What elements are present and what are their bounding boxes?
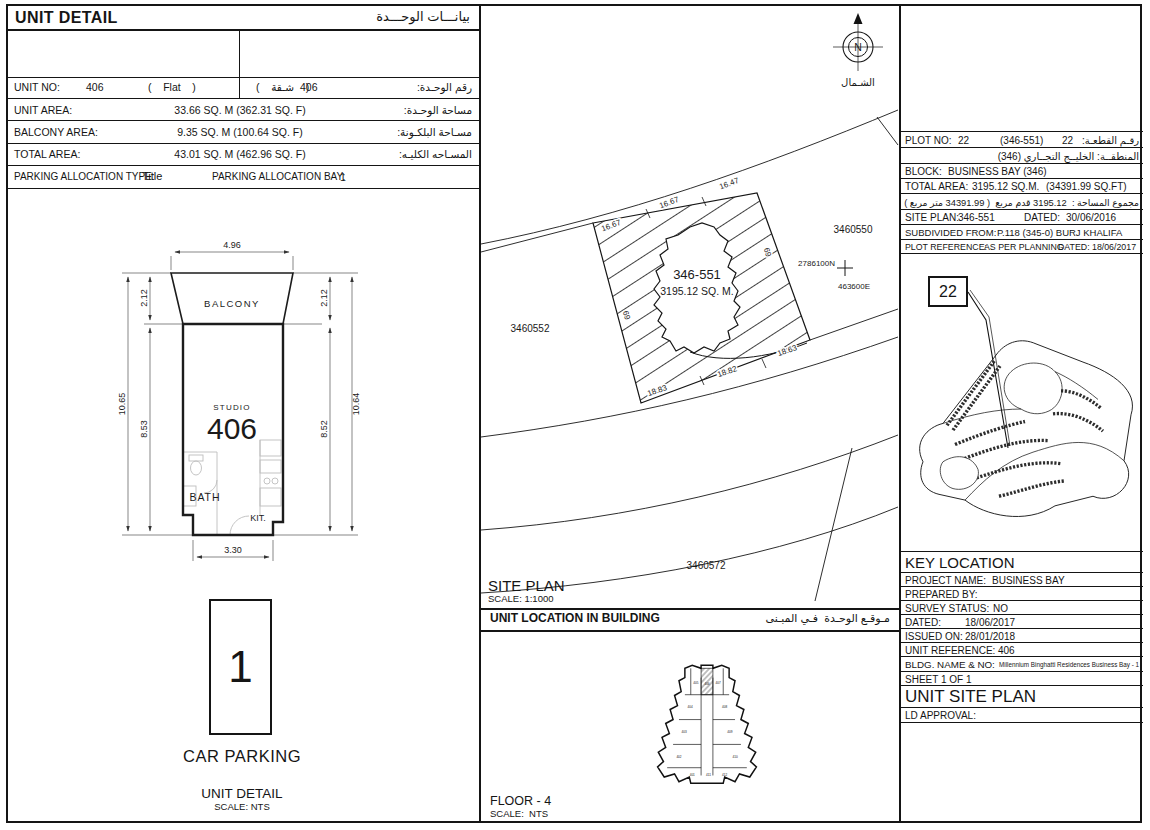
doc-title: UNIT SITE PLAN: [905, 687, 1036, 707]
total-area-arabic-row: مجموع المساحة : 3195.12 قدم مربع ( 34391…: [900, 193, 1143, 209]
left-rule-4: [6, 143, 480, 144]
project-name-row: PROJECT NAME: BUSINESS BAY: [900, 572, 1143, 586]
site-plan-dated-value: 30/06/2016: [1066, 212, 1116, 223]
block-value: BUSINESS BAY (346): [948, 166, 1047, 177]
plate-unit-label: 402: [676, 755, 681, 759]
dim-bottom: 3.30: [224, 545, 242, 555]
prepared-by-row: PREPARED BY:: [900, 586, 1143, 600]
kitchen-label: KIT.: [250, 513, 266, 523]
dated-label: DATED:: [905, 616, 941, 627]
plate-unit-label: 408: [722, 705, 727, 709]
parking-type-value: Title: [142, 170, 162, 183]
neighbor-plot-1: 3460550: [834, 224, 873, 235]
subdivided-label: SUBDIVIDED FROM:: [905, 227, 996, 238]
site-plan-no-label: SITE PLAN:: [905, 212, 959, 223]
left-rule-6: [6, 188, 480, 189]
unit-site-plan-sheet: UNIT DETAIL بيانـــات الوحـــدة UNIT NO:…: [0, 0, 1150, 830]
plot-total-area-label: TOTAL AREA:: [905, 181, 968, 192]
plate-unit-label: 407: [715, 681, 720, 685]
key-location-bottom-rule: [900, 722, 1143, 723]
project-name-label: PROJECT NAME:: [905, 574, 986, 585]
unit-area-label-arabic: مساحة الوحـدة:: [360, 104, 472, 116]
left-rule-5: [6, 165, 480, 166]
site-plan-dated-label: DATED:: [1024, 212, 1060, 223]
page-title: UNIT DETAIL: [15, 9, 118, 27]
plot-no-value: 22: [958, 134, 969, 145]
site-plan-no-value: 346-551: [958, 212, 995, 223]
plate-unit-label: 401: [690, 773, 695, 777]
key-plot-marker-box: 22: [928, 276, 968, 307]
ld-approval-row: LD APPROVAL:: [900, 707, 1143, 722]
issued-on-value: 28/01/2018: [965, 630, 1015, 641]
site-plan-title: SITE PLAN: [488, 577, 565, 594]
unit-detail-caption: UNIT DETAIL: [130, 786, 354, 802]
building-name-row: BLDG. NAME & NO: Millennium Binghatti Re…: [900, 656, 1143, 671]
neighbor-plot-2: 3460552: [511, 323, 550, 334]
balcony-label: BALCONY: [204, 298, 260, 309]
balcony-area-label-arabic: مسـاحة البلكـونة:: [360, 126, 472, 138]
ld-approval-label: LD APPROVAL:: [905, 710, 976, 721]
plot-total-area-sqm: 3195.12 SQ.M.: [972, 181, 1039, 192]
unit-area-label: UNIT AREA:: [14, 104, 72, 116]
unit-detail-scale: SCALE: NTS: [130, 802, 354, 813]
unit-reference-label: UNIT REFERENCE:: [905, 644, 995, 655]
subdivided-value: P.118 (345-0) BURJ KHALIFA: [997, 227, 1122, 238]
unit-no-value: 406: [86, 81, 104, 93]
plot-total-area-sqft: (34391.99 SQ.FT): [1046, 181, 1127, 192]
plot-id-label: 346-551: [673, 267, 721, 282]
interior-fixtures: [183, 440, 281, 535]
dim-left-lower: 8.53: [139, 420, 149, 438]
plate-unit-label: 410: [732, 755, 737, 759]
key-plot-marker: 22: [939, 283, 957, 301]
building-name-label: BLDG. NAME & NO:: [905, 659, 995, 670]
parking-bay-box: 1: [209, 599, 272, 735]
north-arrow-icon: [854, 13, 863, 24]
dim-left-outer: 10.65: [117, 393, 127, 416]
dated-value: 18/06/2017: [965, 616, 1015, 627]
dim-right-outer: 10.64: [351, 393, 361, 416]
unit-location-rule-top: [481, 608, 899, 610]
floor-plan-drawing: 4.96 3.30 10.65 2.12 8.53 10.64 2.12 8.5…: [108, 228, 372, 578]
dim-right-upper: 2.12: [319, 289, 329, 307]
plot-no-row: PLOT NO: 22 (346-551) 22 رقـم القطعـة:: [900, 131, 1143, 147]
unit-type: ( Flat ): [148, 81, 196, 93]
parking-bay-value: 1: [340, 171, 346, 183]
key-location-title: KEY LOCATION: [905, 554, 1014, 571]
map-pond: [940, 457, 978, 490]
coord-east-label: 463600E: [838, 282, 870, 291]
dim-top: 4.96: [223, 240, 241, 250]
survey-status-label: SURVEY STATUS:: [905, 602, 989, 613]
key-location-map: [903, 318, 1143, 548]
plate-unit-label: 412: [722, 773, 727, 777]
plot-no-value-ar: 22: [1062, 134, 1073, 145]
left-cell-divider: [239, 29, 240, 98]
north-label-arabic: الشـمال: [841, 77, 875, 88]
building-floor-plate: 405 406 407 404 408 403 409 402 410 401 …: [648, 659, 766, 791]
balcony-area-value: 9.35 SQ. M (100.64 SQ. F): [120, 126, 360, 138]
project-name-value: BUSINESS BAY: [992, 574, 1065, 585]
plate-unit-label: 405: [693, 681, 698, 685]
plot-no-label-arabic: رقـم القطعـة:: [1082, 134, 1139, 145]
plate-unit-label: 403: [682, 730, 687, 734]
car-parking-title: CAR PARKING: [130, 747, 354, 766]
issued-on-label: ISSUED ON:: [905, 630, 963, 641]
district-row: المنطقــة: الخليــج التجــاري (346): [900, 147, 1143, 163]
unit-reference-value: 406: [998, 644, 1015, 655]
total-area-row: TOTAL AREA: 3195.12 SQ.M. (34391.99 SQ.F…: [900, 178, 1143, 193]
studio-label: STUDIO: [213, 403, 250, 412]
parking-type-label: PARKING ALLOCATION TYPE:: [14, 171, 155, 183]
north-letter: N: [854, 41, 862, 53]
plate-unit-label: 404: [687, 705, 692, 709]
key-location-title-row: KEY LOCATION: [900, 551, 1143, 572]
plate-unit-label: 411: [706, 773, 711, 777]
unit-no-label: UNIT NO:: [14, 81, 60, 93]
total-area-label-arabic: المسـاحه الكليـه:: [360, 148, 472, 160]
dim-right-lower: 8.52: [319, 420, 329, 438]
plot-area-label: 3195.12 SQ. M.: [660, 285, 734, 297]
neighbor-plot-3: 3460572: [687, 560, 726, 571]
unit-location-rule-bottom: [481, 630, 899, 632]
dated-row: DATED: 18/06/2017: [900, 614, 1143, 628]
plot-total-area-arabic: مجموع المساحة : 3195.12 قدم مربع ( 34391…: [904, 196, 1139, 207]
floor-label: FLOOR - 4: [490, 794, 551, 808]
total-area-label: TOTAL AREA:: [14, 148, 80, 160]
building-name-value: Millennium Binghatti Residences Business…: [999, 661, 1139, 668]
survey-status-value: NO: [993, 602, 1008, 613]
unit-no-label-arabic: رقم الوحـدة:: [380, 81, 472, 93]
left-rule-3: [6, 120, 480, 121]
floor-scale: SCALE: NTS: [490, 809, 548, 820]
unit-reference-row: UNIT REFERENCE: 406: [900, 642, 1143, 656]
total-area-value: 43.01 SQ. M (462.96 SQ. F): [120, 148, 360, 160]
left-rule-1: [6, 77, 480, 78]
parking-bay-number: 1: [228, 642, 252, 692]
left-header-rule: [6, 29, 480, 31]
doc-title-row: UNIT SITE PLAN: [900, 685, 1143, 707]
issued-on-row: ISSUED ON: 28/01/2018: [900, 628, 1143, 642]
block-label: BLOCK:: [905, 166, 942, 177]
sheet-row: SHEET 1 OF 1: [900, 671, 1143, 685]
unit-area-value: 33.66 SQ. M (362.31 SQ. F): [120, 104, 360, 116]
unit-location-title-arabic: مـوقـع الوحـدة فـي المبـنى: [700, 612, 890, 625]
unit-number-label: 406: [207, 412, 257, 445]
coordinate-cross-icon: [837, 260, 853, 276]
dim-left-upper: 2.12: [139, 289, 149, 307]
sheet-label: SHEET 1 OF 1: [905, 673, 972, 684]
survey-status-row: SURVEY STATUS: NO: [900, 600, 1143, 614]
block-row: BLOCK: BUSINESS BAY (346): [900, 163, 1143, 178]
site-plan-drawing: N الشـمال 346-551 3195.12 SQ. M. 3460550…: [481, 7, 899, 608]
plot-no-ref: (346-551): [1000, 134, 1043, 145]
bath-label: BATH: [189, 491, 220, 503]
subdivided-row: SUBDIVIDED FROM: P.118 (345-0) BURJ KHAL…: [900, 224, 1143, 239]
plot-no-label: PLOT NO:: [905, 134, 952, 145]
plate-unit-label: 406: [704, 682, 709, 686]
site-plan-row: SITE PLAN: 346-551 DATED: 30/06/2016: [900, 209, 1143, 224]
prepared-by-label: PREPARED BY:: [905, 588, 978, 599]
unit-no-value-arabic-cell: 406: [300, 81, 318, 93]
left-rule-2: [6, 98, 480, 99]
balcony-area-label: BALCONY AREA:: [14, 126, 98, 138]
unit-location-title: UNIT LOCATION IN BUILDING: [490, 612, 660, 626]
page-title-arabic: بيانـــات الوحـــدة: [310, 10, 470, 25]
district-label-arabic: المنطقــة: الخليــج التجــاري (346): [998, 150, 1139, 161]
site-plan-scale: SCALE: 1:1000: [488, 594, 554, 605]
coord-north-label: 2786100N: [798, 259, 835, 268]
parking-bay-label: PARKING ALLOCATION BAY:: [212, 171, 345, 183]
plate-unit-label: 409: [727, 730, 732, 734]
